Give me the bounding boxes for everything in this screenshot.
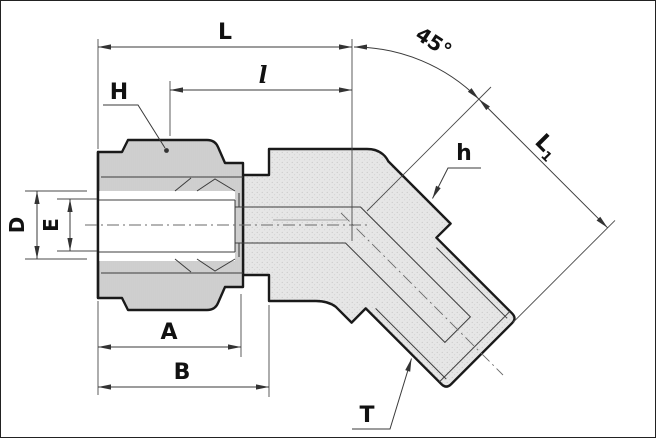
dim-l: l bbox=[170, 62, 352, 90]
dim-T: T bbox=[352, 359, 412, 430]
body-outline bbox=[243, 149, 515, 387]
dim-label-A: A bbox=[160, 320, 177, 345]
fitting bbox=[85, 140, 515, 387]
leader-H-dot bbox=[164, 148, 169, 153]
dim-label-h: h bbox=[456, 141, 472, 166]
drawing-frame: L l 45° L1 H h D bbox=[0, 0, 656, 438]
ext-end-face bbox=[513, 220, 615, 322]
ext-radial-45 bbox=[367, 87, 491, 211]
dim-A: A bbox=[98, 320, 241, 347]
technical-drawing: L l 45° L1 H h D bbox=[1, 1, 656, 438]
leader-h bbox=[433, 168, 482, 199]
dim-label-B: B bbox=[174, 360, 191, 385]
dim-label-D: D bbox=[5, 217, 29, 234]
dim-B: B bbox=[98, 360, 269, 387]
dim-label-T: T bbox=[359, 403, 374, 428]
dim-label-45: 45° bbox=[411, 22, 456, 63]
dim-label-l: l bbox=[259, 62, 268, 89]
dim-angle-45: 45° bbox=[354, 22, 479, 99]
dim-label-H: H bbox=[110, 80, 128, 105]
dim-label-L: L bbox=[218, 20, 232, 45]
tube-bore bbox=[99, 191, 235, 261]
dim-h: h bbox=[433, 141, 482, 199]
dim-label-E: E bbox=[39, 218, 63, 232]
dim-L: L bbox=[98, 20, 352, 47]
dim-L1: L1 bbox=[479, 99, 608, 228]
dim-45-arc bbox=[354, 47, 479, 99]
dim-D: D bbox=[5, 191, 37, 259]
dim-E: E bbox=[39, 199, 70, 251]
dim-label-L1: L1 bbox=[527, 129, 563, 165]
